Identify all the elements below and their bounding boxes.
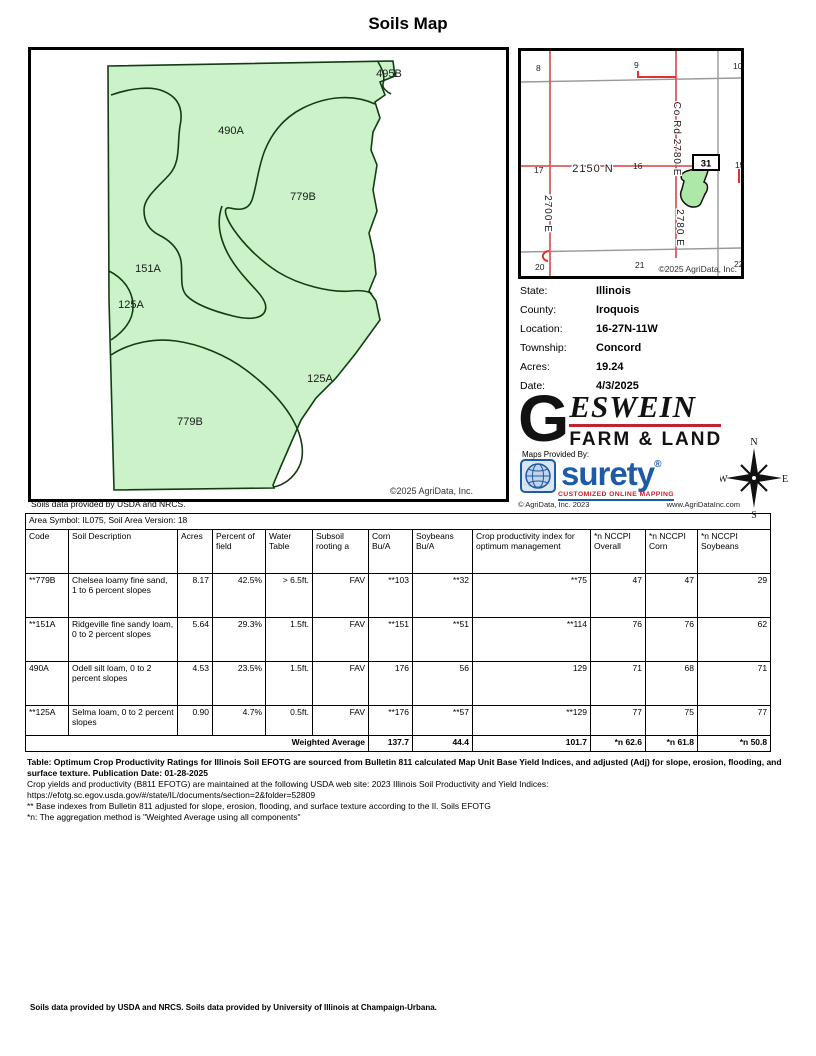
- info-row: Acres:19.24: [520, 357, 746, 376]
- column-header: Soil Description: [69, 530, 178, 574]
- value-cell: 71: [591, 662, 646, 706]
- compass-w-label: W: [720, 474, 728, 485]
- value-cell: **57: [413, 706, 473, 736]
- table-footnotes: Table: Optimum Crop Productivity Ratings…: [27, 757, 791, 823]
- geswein-initial: G: [518, 391, 567, 445]
- soil-region-label: 495B: [376, 68, 402, 80]
- column-header: Soybeans Bu/A: [413, 530, 473, 574]
- soil-map: 495B490A779B151A125A125A779B ©2025 AgriD…: [28, 47, 509, 502]
- parcel-outline: [108, 61, 395, 490]
- locator-parcel-shape: [681, 166, 708, 207]
- road-label: 2780 E: [674, 209, 685, 247]
- section-number: 10: [733, 61, 741, 71]
- value-cell: 42.5%: [213, 574, 266, 618]
- value-cell: 176: [369, 662, 413, 706]
- section-number: 8: [536, 63, 541, 73]
- value-cell: **51: [413, 618, 473, 662]
- value-cell: **114: [473, 618, 591, 662]
- column-header: *n NCCPI Soybeans: [698, 530, 771, 574]
- value-cell: 29: [698, 574, 771, 618]
- weighted-average-value: 101.7: [473, 736, 591, 752]
- locator-map: 31 89101716152021222150 NCo Rd 2780 E278…: [518, 48, 744, 279]
- map-copyright: ©2025 AgriData, Inc.: [390, 486, 473, 496]
- table-row: **779BChelsea loamy fine sand, 1 to 6 pe…: [26, 574, 771, 618]
- soil-description-cell: Chelsea loamy fine sand, 1 to 6 percent …: [69, 574, 178, 618]
- column-header: *n NCCPI Overall: [591, 530, 646, 574]
- surety-copyright: © AgriData, Inc. 2023: [518, 500, 589, 509]
- weighted-average-row: Weighted Average137.744.4101.7*n 62.6*n …: [26, 736, 771, 752]
- footnote: Crop yields and productivity (B811 EFOTG…: [27, 779, 791, 790]
- geswein-red-rule: [569, 424, 721, 427]
- value-cell: FAV: [313, 706, 369, 736]
- table-row: 490AOdell silt loam, 0 to 2 percent slop…: [26, 662, 771, 706]
- soil-map-drawing: 495B490A779B151A125A125A779B ©2025 AgriD…: [31, 50, 506, 499]
- red-tick-section20: [543, 251, 549, 261]
- footnote-url[interactable]: https://efotg.sc.egov.usda.gov/#/state/I…: [27, 790, 791, 801]
- value-cell: **176: [369, 706, 413, 736]
- info-value: Iroquois: [596, 304, 639, 316]
- value-cell: 76: [646, 618, 698, 662]
- surety-wordmark: surety: [561, 455, 654, 492]
- column-header: Code: [26, 530, 69, 574]
- column-header: Crop productivity index for optimum mana…: [473, 530, 591, 574]
- info-row: County:Iroquois: [520, 300, 746, 319]
- section-line-h-top: [521, 78, 741, 82]
- value-cell: 47: [591, 574, 646, 618]
- weighted-average-value: *n 61.8: [646, 736, 698, 752]
- footnote: ** Base indexes from Bulletin 811 adjust…: [27, 801, 791, 812]
- weighted-average-value: 137.7: [369, 736, 413, 752]
- area-symbol-line: Area Symbol: IL075, Soil Area Version: 1…: [26, 514, 771, 530]
- value-cell: 76: [591, 618, 646, 662]
- soil-region-label: 125A: [307, 373, 333, 385]
- soil-ratings-table: Area Symbol: IL075, Soil Area Version: 1…: [25, 513, 771, 752]
- column-header: Corn Bu/A: [369, 530, 413, 574]
- info-value: 16-27N-11W: [596, 323, 658, 335]
- value-cell: FAV: [313, 662, 369, 706]
- geswein-logo: G ESWEIN FARM & LAND: [518, 391, 722, 451]
- value-cell: 5.64: [178, 618, 213, 662]
- info-row: Township:Concord: [520, 338, 746, 357]
- soil-region-label: 490A: [218, 125, 244, 137]
- value-cell: FAV: [313, 574, 369, 618]
- value-cell: **75: [473, 574, 591, 618]
- section-number: 16: [633, 161, 643, 171]
- geswein-name: ESWEIN: [569, 393, 722, 421]
- soil-region-label: 779B: [290, 191, 316, 203]
- soil-code-cell: **125A: [26, 706, 69, 736]
- soil-description-cell: Ridgeville fine sandy loam, 0 to 2 perce…: [69, 618, 178, 662]
- soil-description-cell: Selma loam, 0 to 2 percent slopes: [69, 706, 178, 736]
- soil-code-cell: **151A: [26, 618, 69, 662]
- footnote: Table: Optimum Crop Productivity Ratings…: [27, 757, 791, 779]
- weighted-average-value: *n 50.8: [698, 736, 771, 752]
- table-row: **125ASelma loam, 0 to 2 percent slopes0…: [26, 706, 771, 736]
- info-label: Township:: [520, 342, 596, 354]
- info-value: 19.24: [596, 361, 624, 373]
- column-header: Acres: [178, 530, 213, 574]
- red-tick-section9: [638, 71, 676, 77]
- parcel-info: State:IllinoisCounty:IroquoisLocation:16…: [520, 281, 746, 395]
- soil-region-label: 779B: [177, 416, 203, 428]
- page-footer: Soils data provided by USDA and NRCS. So…: [30, 1003, 437, 1012]
- value-cell: 56: [413, 662, 473, 706]
- value-cell: 4.53: [178, 662, 213, 706]
- soil-description-cell: Odell silt loam, 0 to 2 percent slopes: [69, 662, 178, 706]
- value-cell: 77: [698, 706, 771, 736]
- section-line-h-bottom: [521, 248, 741, 252]
- value-cell: 68: [646, 662, 698, 706]
- info-label: Location:: [520, 323, 596, 335]
- weighted-average-value: *n 62.6: [591, 736, 646, 752]
- locator-drawing: 31 89101716152021222150 NCo Rd 2780 E278…: [521, 51, 741, 276]
- value-cell: 71: [698, 662, 771, 706]
- compass-e-label: E: [782, 474, 788, 485]
- value-cell: **32: [413, 574, 473, 618]
- section-number: 9: [634, 60, 639, 70]
- value-cell: 47: [646, 574, 698, 618]
- section-number: 15: [735, 160, 741, 170]
- value-cell: 0.90: [178, 706, 213, 736]
- footnote: *n: The aggregation method is "Weighted …: [27, 812, 791, 823]
- info-row: Location:16-27N-11W: [520, 319, 746, 338]
- surety-registered-mark: ®: [654, 459, 661, 470]
- road-label: Co Rd 2780 E: [671, 102, 682, 177]
- parcel-number: 31: [701, 159, 712, 170]
- info-label: County:: [520, 304, 596, 316]
- column-header: Water Table: [266, 530, 313, 574]
- info-label: State:: [520, 285, 596, 297]
- value-cell: 29.3%: [213, 618, 266, 662]
- value-cell: 75: [646, 706, 698, 736]
- value-cell: > 6.5ft.: [266, 574, 313, 618]
- value-cell: **103: [369, 574, 413, 618]
- info-row: State:Illinois: [520, 281, 746, 300]
- column-header: *n NCCPI Corn: [646, 530, 698, 574]
- column-header: Percent of field: [213, 530, 266, 574]
- section-number: 20: [535, 262, 545, 272]
- globe-icon: [520, 459, 558, 494]
- geswein-tagline: FARM & LAND: [569, 429, 722, 451]
- weighted-average-value: 44.4: [413, 736, 473, 752]
- surety-logo: surety®: [520, 459, 661, 494]
- compass-n-label: N: [750, 437, 757, 448]
- value-cell: 1.5ft.: [266, 662, 313, 706]
- compass-rose-icon: N E S W: [720, 436, 788, 520]
- section-number: 17: [534, 165, 544, 175]
- value-cell: **151: [369, 618, 413, 662]
- soil-region-label: 125A: [118, 299, 144, 311]
- value-cell: 1.5ft.: [266, 618, 313, 662]
- section-number: 21: [635, 260, 645, 270]
- value-cell: 129: [473, 662, 591, 706]
- page-title: Soils Map: [0, 14, 816, 34]
- value-cell: FAV: [313, 618, 369, 662]
- info-label: Acres:: [520, 361, 596, 373]
- value-cell: 62: [698, 618, 771, 662]
- soil-code-cell: **779B: [26, 574, 69, 618]
- info-value: Illinois: [596, 285, 631, 297]
- value-cell: 4.7%: [213, 706, 266, 736]
- value-cell: 8.17: [178, 574, 213, 618]
- soil-code-cell: 490A: [26, 662, 69, 706]
- road-label: 2150 N: [572, 163, 613, 175]
- value-cell: 23.5%: [213, 662, 266, 706]
- column-header: Subsoil rooting a: [313, 530, 369, 574]
- road-label: 2700 E: [542, 195, 553, 233]
- table-row: **151ARidgeville fine sandy loam, 0 to 2…: [26, 618, 771, 662]
- locator-copyright: ©2025 AgriData, Inc.: [658, 264, 737, 274]
- value-cell: 77: [591, 706, 646, 736]
- value-cell: **129: [473, 706, 591, 736]
- soils-map-report-page: Soils Map 495B490A779B151A125A125A779B ©…: [0, 0, 816, 1056]
- soil-region-label: 151A: [135, 263, 161, 275]
- map-caption: Soils data provided by USDA and NRCS.: [31, 499, 186, 509]
- info-value: Concord: [596, 342, 641, 354]
- weighted-average-label: Weighted Average: [26, 736, 369, 752]
- value-cell: 0.5ft.: [266, 706, 313, 736]
